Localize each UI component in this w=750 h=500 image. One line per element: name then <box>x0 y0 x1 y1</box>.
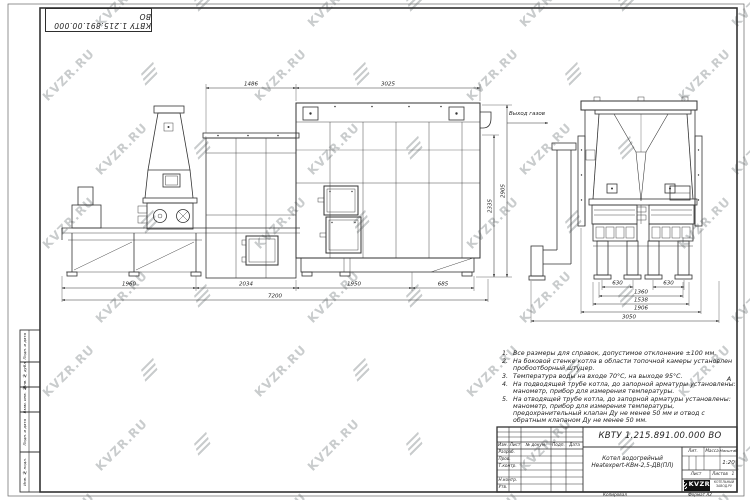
side-stamp-cell: Инв. № дубл. <box>21 362 30 387</box>
dimension-label: 1360 <box>634 290 648 296</box>
title-block-doc-number: КВТУ 1.215.891.00.000 ВО <box>583 427 737 447</box>
kvzr-logo-text: KVZR <box>689 481 710 488</box>
note-text: На отводящей трубе котла, до запорной ар… <box>513 396 736 424</box>
note-number: 1. <box>502 350 513 357</box>
tb-row-checked: Пров. <box>497 456 525 463</box>
tb-scale-value: 1:20 <box>720 456 737 470</box>
note-text: На боковой стенке котла в области топочн… <box>513 358 736 372</box>
drawing-sheet: KVZR.RUKVZR.RUKVZR.RUKVZR.RUKVZR.RUKVZR.… <box>0 0 750 500</box>
dimension-label: 630 <box>663 281 674 287</box>
boiler-left-block <box>203 133 299 278</box>
tb-scale-label: Масштаб <box>720 447 737 456</box>
corner-stamp-doc-number: КВТУ 1.215.891.00.000 ВО <box>45 8 152 32</box>
note-number: 4. <box>502 381 513 395</box>
side-stamp-label: Подп. и дата <box>22 419 27 446</box>
tb-row-developed: Разраб. <box>497 449 525 456</box>
front-view <box>529 97 702 280</box>
dimension-labels: 1486 3025 2905 2335 1960 2034 1950 685 7… <box>122 82 731 384</box>
logo-caption-line2: ЗАВОД.РУ <box>716 485 732 489</box>
notes-list: 1.Все размеры для справок, допустимое от… <box>502 350 736 425</box>
dimension-label: 1538 <box>634 298 648 304</box>
tb-sheets-value: 1 <box>729 470 737 479</box>
note-text: Температура воды на входе 70°С, на выход… <box>513 373 736 380</box>
dimension-label: 3025 <box>381 82 395 88</box>
tb-header-doc: № докум. <box>521 442 551 449</box>
boiler-body <box>296 103 491 276</box>
fuel-feeder <box>62 106 300 276</box>
gas-outlet-label: Выход газов <box>509 111 545 117</box>
dimension-label: 2905 <box>501 184 507 198</box>
gas-outlet-stub <box>480 112 491 128</box>
side-stamp-cell: Взам. инв. № <box>21 387 30 412</box>
tb-header-list: Лист <box>509 442 521 449</box>
side-stamp-cell: Подп. и дата <box>21 412 30 452</box>
note-number: 3. <box>502 373 513 380</box>
title-block-product-name: Котел водогрейный Heatexpert-КВм-2,5-ДВ(… <box>583 448 682 478</box>
note-item: 1.Все размеры для справок, допустимое от… <box>502 350 736 357</box>
product-name-line2: Heatexpert-КВм-2,5-ДВ(ПЛ) <box>591 463 673 470</box>
dimension-label: 1960 <box>122 282 136 288</box>
format-label: Формат А2 <box>663 492 737 500</box>
dimension-label: 630 <box>612 281 623 287</box>
note-number: 5. <box>502 396 513 424</box>
note-item: 5.На отводящей трубе котла, до запорной … <box>502 396 736 424</box>
note-item: 3.Температура воды на входе 70°С, на вых… <box>502 373 736 380</box>
tb-row-ncontrol: Н.контр. <box>497 477 525 484</box>
dimension-label: 2034 <box>239 282 253 288</box>
tb-header-podp: Подп. <box>551 442 566 449</box>
tb-lit-label: Лит. <box>682 447 704 456</box>
product-name-line1: Котел водогрейный <box>602 456 663 463</box>
kvzr-logo: KVZR <box>684 480 710 491</box>
side-stamp-label: Инв. № дубл. <box>22 361 27 389</box>
note-item: 4.На подводящей трубе котла, до запорной… <box>502 381 736 395</box>
dimensions <box>62 84 719 323</box>
tb-row-tcontrol: Т.контр. <box>497 463 525 470</box>
dimension-label: 2335 <box>488 199 494 213</box>
technical-drawing: 1486 3025 2905 2335 1960 2034 1950 685 7… <box>0 0 750 500</box>
tb-row-approved: Утв. <box>497 484 525 491</box>
flue-pipe <box>529 143 576 280</box>
side-view <box>62 103 491 278</box>
note-number: 2. <box>502 358 513 372</box>
dimension-label: 7200 <box>268 294 282 300</box>
note-text: Все размеры для справок, допустимое откл… <box>513 350 736 357</box>
dimension-label: 685 <box>438 282 449 288</box>
tb-header-data: Дата <box>566 442 583 449</box>
side-stamp-label: Взам. инв. № <box>22 386 27 413</box>
dimension-label: 1486 <box>244 82 258 88</box>
dimension-label: 3050 <box>622 315 636 321</box>
hopper-top-plate <box>595 110 691 114</box>
side-stamp-label: Подп. и дата <box>22 333 27 360</box>
side-stamp-cell: Подп. и дата <box>21 330 30 362</box>
kvzr-logo-caption: КОТЕЛЬНЫЙ ЗАВОД.РУ <box>711 480 737 491</box>
dimension-label: 1950 <box>347 282 361 288</box>
tb-sheets-label: Листов <box>710 470 730 479</box>
note-item: 2.На боковой стенке котла в области топо… <box>502 358 736 372</box>
tb-sheet-label: Лист <box>682 470 710 479</box>
side-stamp-cell: Инв. № подл. <box>21 452 30 492</box>
tb-mass-label: Масса <box>704 447 720 456</box>
note-text: На подводящей трубе котла, до запорной а… <box>513 381 736 395</box>
kvzr-logo-icon <box>684 482 687 489</box>
tb-header-izm: Изм. <box>497 442 509 449</box>
dimension-label: 1906 <box>634 306 648 312</box>
side-stamp-label: Инв. № подл. <box>22 458 27 486</box>
